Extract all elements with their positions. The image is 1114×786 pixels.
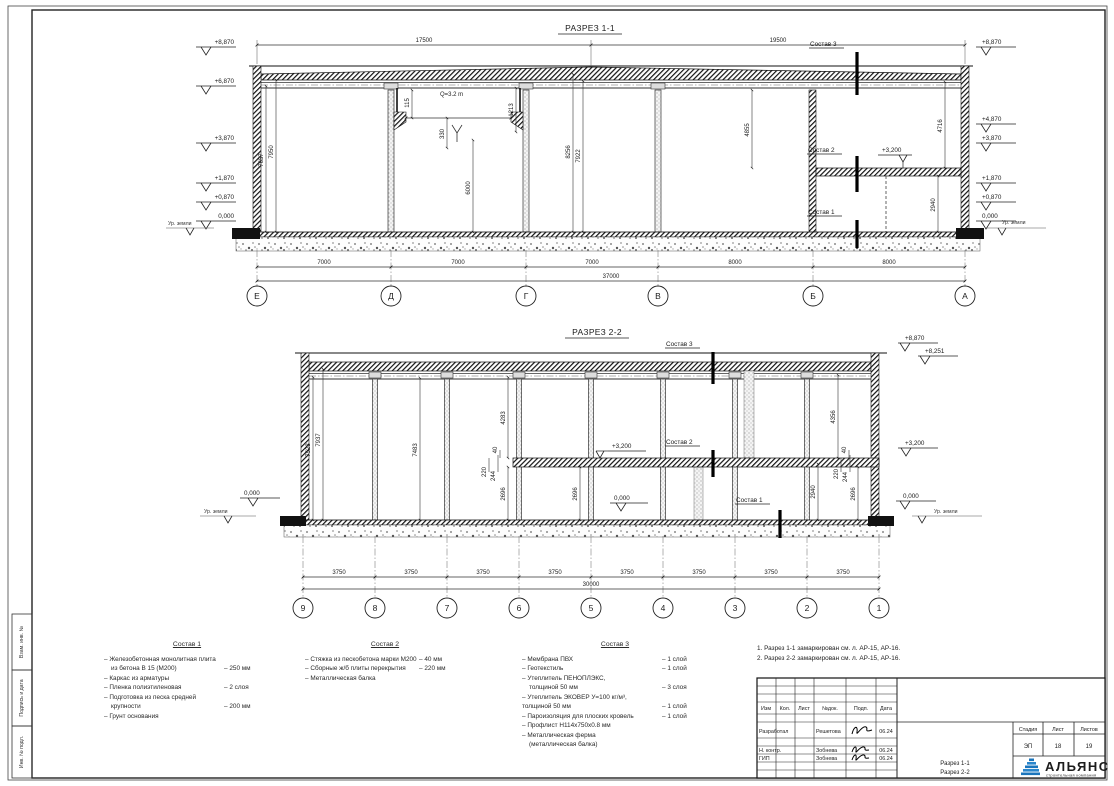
svg-text:+3,870: +3,870	[982, 135, 1002, 142]
svg-text:+8,870: +8,870	[982, 39, 1002, 46]
composition-title: Состав 1	[104, 640, 270, 650]
dim-label: 40	[842, 446, 848, 453]
dim-label: 115	[405, 98, 411, 108]
wall-right	[871, 353, 879, 520]
composition-row: – Сборные ж/б плиты перекрытия– 220 мм	[305, 664, 465, 674]
dim-label: 19500	[770, 38, 787, 44]
composition-1: Состав 1 – Железобетонная монолитная пли…	[104, 640, 270, 721]
svg-text:3750: 3750	[404, 570, 418, 576]
dim-label: 40	[493, 446, 499, 453]
dims-vertical	[266, 74, 945, 232]
doc-title-line1: Разрез 1-1	[940, 761, 970, 767]
dim-label: 7483	[413, 443, 419, 457]
section-1-1: РАЗРЕЗ 1-1 Q=3.2 m	[166, 23, 1046, 306]
svg-text:+3,200: +3,200	[882, 147, 902, 154]
dim-label: 2696	[501, 487, 507, 501]
ground	[280, 516, 894, 537]
composition-row: – Профлист Н114х750х0.8 мм	[522, 721, 708, 731]
composition-row: – Мембрана ПВХ– 1 слой	[522, 655, 708, 665]
dim-label: 2940	[811, 485, 817, 499]
composition-row: толщиной 50 мм– 1 слой	[522, 702, 708, 712]
dim-label: 7950	[269, 145, 275, 159]
svg-text:3750: 3750	[476, 570, 490, 576]
svg-text:7000: 7000	[585, 260, 599, 266]
frame-label: Инв. № подл.	[19, 736, 25, 768]
partition-upper	[744, 371, 754, 458]
svg-text:0,000: 0,000	[218, 213, 234, 220]
axis-bubbles: Е Д Г В Б А	[247, 286, 975, 306]
composition-row: – Грунт основания	[104, 712, 270, 722]
dim-total: 37000	[603, 274, 620, 280]
roof-slab	[309, 362, 871, 371]
tb-date: 06.24	[879, 748, 893, 754]
dim-chain-bottom: 3750 3750 3750 3750 3750 3750 3750 3750 …	[303, 536, 879, 598]
elevations-left: +8,870 +6,870 +3,870 +1,870 +0,870 0,000…	[166, 39, 236, 235]
svg-text:3: 3	[733, 603, 738, 613]
ground-level-label: Ур. земли	[204, 509, 228, 515]
dim-label: 7937	[316, 433, 322, 447]
crane-capacity-label: Q=3.2 m	[440, 92, 463, 98]
composition-row: – Каркас из арматуры	[104, 674, 270, 684]
section-2-2: РАЗРЕЗ 2-2	[200, 327, 982, 618]
svg-text:3750: 3750	[764, 570, 778, 576]
composition-row: – Пароизоляция для плоских кровель– 1 сл…	[522, 712, 708, 722]
section-1-1-title: РАЗРЕЗ 1-1	[565, 23, 615, 33]
composition-row: – Утеплитель ЭКОВЕР У=100 кг/м³,	[522, 693, 708, 703]
tb-col: Лист	[798, 706, 810, 712]
ground-level-label: Ур. земли	[934, 509, 958, 515]
svg-text:+3,200: +3,200	[612, 443, 632, 450]
tb-date: 06.24	[879, 729, 893, 735]
dim-label: 4283	[501, 411, 507, 425]
tb-date: 06.24	[879, 756, 893, 762]
svg-text:1: 1	[877, 603, 882, 613]
dim-chain-bottom: 7000 7000 7000 8000 8000 37000	[257, 250, 965, 286]
composition-title: Состав 3	[522, 640, 708, 650]
columns	[384, 83, 665, 232]
svg-text:4: 4	[661, 603, 666, 613]
sheet-notes: 1. Разрез 1-1 замаркирован см. л. АР-15,…	[757, 644, 1057, 664]
composition-3: Состав 3 – Мембрана ПВХ– 1 слой – Геотек…	[522, 640, 708, 750]
svg-text:+0,870: +0,870	[982, 194, 1002, 201]
dim-total: 30000	[583, 582, 600, 588]
composition-row: (металлическая балка)	[522, 740, 708, 750]
svg-text:3750: 3750	[620, 570, 634, 576]
dim-label: 2940	[931, 198, 937, 212]
svg-text:0,000: 0,000	[982, 213, 998, 220]
svg-text:6: 6	[517, 603, 522, 613]
composition-2: Состав 2 – Стяжка из пескобетона марки М…	[305, 640, 465, 683]
sostav1-label: Состав 1	[808, 209, 835, 216]
sostav2-label: Состав 2	[808, 147, 835, 154]
note-line: 2. Разрез 2-2 замаркирован см. л. АР-15,…	[757, 654, 1057, 664]
drawing-sheet: Взам. инв. № Подпись и дата Инв. № подл.…	[0, 0, 1114, 786]
svg-text:0,000: 0,000	[244, 490, 260, 497]
wall-right	[961, 66, 969, 232]
dim-label: 17500	[416, 38, 433, 44]
svg-text:А: А	[962, 291, 968, 301]
dims-vertical	[313, 369, 858, 520]
composition-row: – Утеплитель ПЕНОПЛЭКС,	[522, 674, 708, 684]
svg-text:+3,200: +3,200	[905, 440, 925, 447]
note-line: 1. Разрез 1-1 замаркирован см. л. АР-15,…	[757, 644, 1057, 654]
tb-role: ГИП	[759, 756, 770, 762]
elevations-right: +8,870 +4,870 +3,870 +1,870 +0,870 0,000…	[976, 39, 1046, 235]
company-subtitle: строительная компания	[1046, 774, 1096, 778]
sheets-total: 19	[1086, 744, 1093, 750]
dim-label: 244	[491, 470, 497, 481]
composition-row: – Подготовка из песка средней	[104, 693, 270, 703]
company-name: АЛЬЯНС	[1045, 759, 1110, 774]
composition-row: – Стяжка из пескобетона марки М200– 40 м…	[305, 655, 465, 665]
svg-text:+4,870: +4,870	[982, 116, 1002, 123]
dim-label: 8256	[566, 145, 572, 159]
partition-lower	[694, 467, 703, 520]
ground-level-label: Ур. земли	[1002, 220, 1026, 226]
dim-label: 1213	[509, 103, 515, 117]
sostav1-label: Состав 1	[736, 497, 763, 504]
tb-col: Подп.	[854, 706, 868, 712]
wall-left	[253, 66, 261, 232]
svg-text:+1,870: +1,870	[215, 175, 235, 182]
frame-label: Подпись и дата	[19, 679, 25, 716]
dim-label: 220	[482, 466, 488, 477]
svg-text:+3,870: +3,870	[215, 135, 235, 142]
mezzanine-slab	[816, 168, 961, 176]
dim-label: 7657	[259, 153, 265, 167]
composition-row: – Пленка полиэтиленовая– 2 слоя	[104, 683, 270, 693]
svg-text:8: 8	[373, 603, 378, 613]
dim-label: 7523	[306, 443, 312, 457]
ground-level-label: Ур. земли	[168, 221, 192, 227]
dim-label: 220	[834, 468, 840, 479]
composition-row: крупности– 200 мм	[104, 702, 270, 712]
svg-text:+0,870: +0,870	[215, 194, 235, 201]
svg-text:5: 5	[589, 603, 594, 613]
axis-bubbles: 9 8 7 6 5 4 3 2 1	[293, 598, 889, 618]
svg-text:3750: 3750	[548, 570, 562, 576]
crane-runway: Q=3.2 m	[394, 88, 523, 142]
frame-label: Взам. инв. №	[19, 625, 25, 658]
dim-label: 330	[440, 128, 446, 139]
svg-text:7000: 7000	[317, 260, 331, 266]
svg-text:7000: 7000	[451, 260, 465, 266]
sostav2-label: Состав 2	[666, 439, 693, 446]
svg-text:9: 9	[301, 603, 306, 613]
doc-title-line2: Разрез 2-2	[940, 770, 970, 776]
sheets-label: Листов	[1080, 727, 1098, 733]
composition-title: Состав 2	[305, 640, 465, 650]
tb-name: Зобнева	[816, 756, 837, 762]
sostav3-label: Состав 3	[666, 341, 693, 348]
section-2-2-title: РАЗРЕЗ 2-2	[572, 327, 622, 337]
svg-text:8000: 8000	[882, 260, 896, 266]
dim-label: 7922	[576, 149, 582, 163]
tb-col: Кол.	[780, 706, 791, 712]
svg-text:+6,870: +6,870	[215, 78, 235, 85]
svg-text:3750: 3750	[332, 570, 346, 576]
tb-col: №док.	[822, 706, 838, 712]
dim-top: 17500 19500	[257, 38, 965, 66]
composition-row: – Металлическая ферма	[522, 731, 708, 741]
composition-row: из бетона В 15 (М200)– 250 мм	[104, 664, 270, 674]
composition-row: толщиной 50 мм– 3 слоя	[522, 683, 708, 693]
svg-text:Г: Г	[524, 291, 529, 301]
svg-text:0,000: 0,000	[903, 493, 919, 500]
svg-text:Е: Е	[254, 291, 260, 301]
dim-label: 4356	[831, 410, 837, 424]
dim-label: 4716	[938, 119, 944, 133]
svg-text:+8,251: +8,251	[925, 348, 945, 355]
wall-left	[301, 353, 309, 520]
svg-text:8000: 8000	[728, 260, 742, 266]
tb-name: Зобнева	[816, 748, 837, 754]
svg-text:3750: 3750	[836, 570, 850, 576]
sostav3-label: Состав 3	[810, 41, 837, 48]
title-block: Изм Кол. Лист №док. Подп. Дата Разработа…	[757, 678, 1110, 778]
composition-row: – Геотекстиль– 1 слой	[522, 664, 708, 674]
svg-text:+8,870: +8,870	[215, 39, 235, 46]
tb-col: Изм	[761, 706, 771, 712]
sheet-number: 18	[1055, 744, 1062, 750]
composition-row: – Металлическая балка	[305, 674, 465, 684]
tb-role: Н. контр.	[759, 748, 781, 754]
dim-label: 244	[843, 471, 849, 482]
svg-text:3750: 3750	[692, 570, 706, 576]
stage-value: ЭП	[1024, 744, 1033, 750]
svg-text:В: В	[655, 291, 661, 301]
dim-label: 6000	[466, 181, 472, 195]
mezzanine-slab	[513, 458, 879, 467]
svg-text:Б: Б	[810, 291, 816, 301]
stage-label: Стадия	[1019, 727, 1037, 733]
tb-name: Решетова	[816, 729, 841, 735]
sheet-label: Лист	[1052, 727, 1064, 733]
svg-text:Д: Д	[388, 291, 394, 301]
ground	[232, 228, 984, 251]
composition-row: – Железобетонная монолитная плита	[104, 655, 270, 665]
svg-text:0,000: 0,000	[614, 495, 630, 502]
dim-label: 4855	[745, 123, 751, 137]
svg-text:7: 7	[445, 603, 450, 613]
dim-label: 2696	[573, 487, 579, 501]
svg-text:2: 2	[805, 603, 810, 613]
dim-label: 2696	[851, 487, 857, 501]
tb-col: Дата	[880, 706, 892, 712]
svg-text:+8,870: +8,870	[905, 335, 925, 342]
tb-role: Разработал	[759, 729, 788, 735]
elevation-mezz: +3,200	[878, 147, 912, 168]
svg-text:+1,870: +1,870	[982, 175, 1002, 182]
